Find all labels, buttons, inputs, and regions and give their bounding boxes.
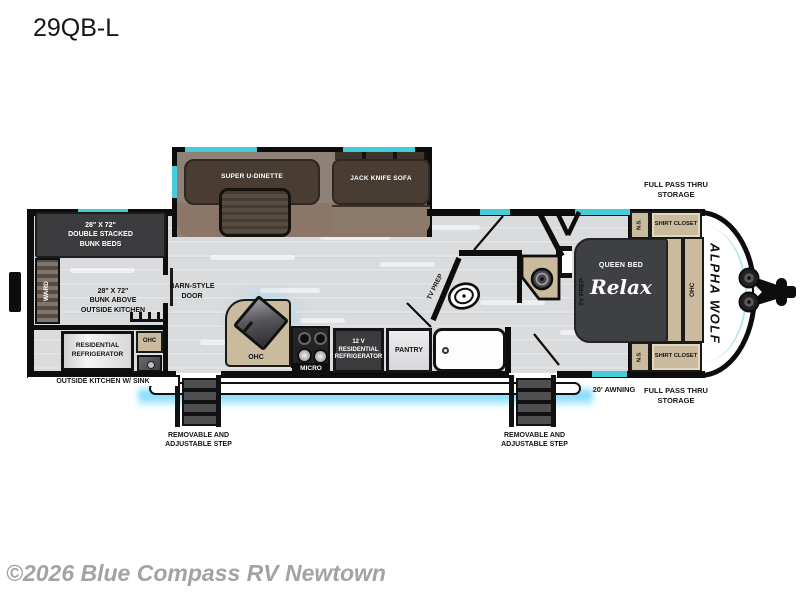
step-tread: [182, 378, 218, 390]
step-tread: [516, 378, 553, 390]
dealer-watermark: ©2026 Blue Compass RV Newtown: [6, 558, 386, 588]
overlay-shapes: [0, 0, 800, 600]
tv-corner-wall: [557, 212, 568, 235]
storage-label-line: FULL PASS THRU: [644, 386, 708, 396]
step-label-line: REMOVABLE AND: [168, 431, 229, 440]
entry-step-front: [175, 375, 221, 427]
entry-step-rear: [509, 375, 556, 427]
storage-label-line: STORAGE: [658, 396, 695, 406]
hitch-coupler: [785, 286, 796, 298]
tv-corner-wall: [568, 212, 579, 235]
step-tread: [516, 414, 553, 426]
bedroom-door: [534, 334, 559, 365]
rear-bumper: [9, 272, 21, 312]
step-label-line: REMOVABLE AND: [504, 431, 565, 440]
vanity-sink-drain: [540, 277, 544, 281]
step-tread: [182, 414, 218, 426]
bath-door: [474, 216, 503, 250]
storage-label-line: FULL PASS THRU: [644, 180, 708, 190]
step-tread: [182, 390, 218, 402]
floorplan-page: 29QB-L ALPHA WOLF SUPER U-DINETTE JACK K…: [0, 0, 800, 600]
toilet: [446, 280, 482, 312]
propane-tank: [740, 293, 759, 312]
step-tread: [516, 390, 553, 402]
step-tread: [516, 402, 553, 414]
step-label-rear: REMOVABLE AND ADJUSTABLE STEP: [492, 430, 577, 450]
propane-tank: [740, 269, 759, 288]
step-label-front: REMOVABLE AND ADJUSTABLE STEP: [156, 430, 241, 450]
step-label-line: ADJUSTABLE STEP: [165, 440, 232, 449]
pass-thru-storage-top: FULL PASS THRU STORAGE: [626, 179, 726, 201]
storage-label-line: STORAGE: [658, 190, 695, 200]
step-label-line: ADJUSTABLE STEP: [501, 440, 568, 449]
step-tread: [182, 402, 218, 414]
outside-kitchen-label: OUTSIDE KITCHEN W/ SINK: [28, 377, 178, 386]
pantry-door: [407, 303, 431, 327]
